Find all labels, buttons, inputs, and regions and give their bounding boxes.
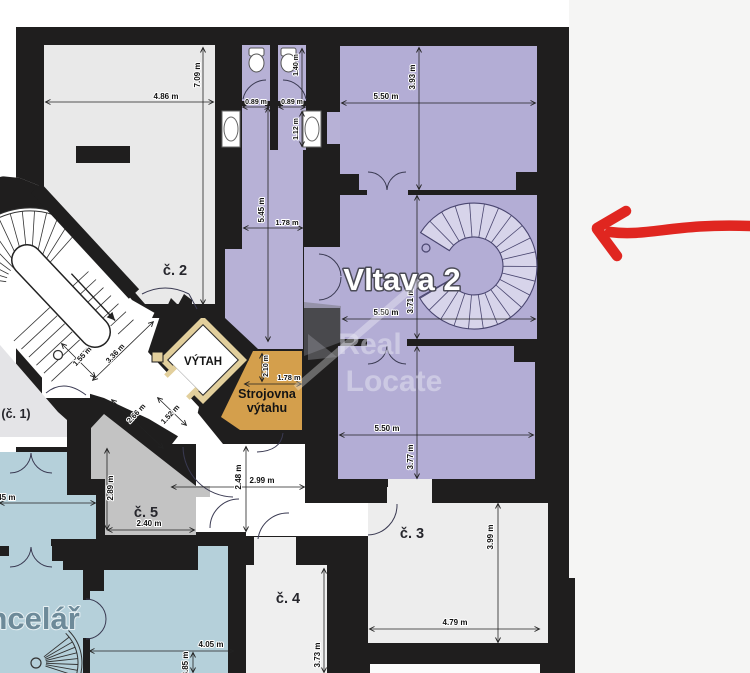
svg-text:3.99 m: 3.99 m	[486, 525, 495, 550]
svg-text:5.50 m: 5.50 m	[374, 92, 399, 101]
svg-text:1.78 m: 1.78 m	[277, 373, 301, 382]
svg-text:č. 2: č. 2	[163, 263, 187, 279]
svg-text:č. 3: č. 3	[400, 526, 424, 542]
svg-text:Vltava 2: Vltava 2	[343, 262, 460, 297]
svg-text:0.89 m: 0.89 m	[281, 99, 303, 106]
svg-text:2.10 m: 2.10 m	[263, 355, 270, 377]
svg-text:kancelář: kancelář	[0, 601, 80, 636]
svg-text:1.78 m: 1.78 m	[275, 218, 299, 227]
svg-text:1.40 m: 1.40 m	[293, 54, 300, 76]
svg-text:Locate: Locate	[346, 365, 443, 398]
svg-text:VÝTAH: VÝTAH	[184, 355, 222, 368]
svg-text:5.50 m: 5.50 m	[375, 424, 400, 433]
svg-text:3.77 m: 3.77 m	[406, 445, 415, 470]
svg-text:výtahu: výtahu	[247, 401, 287, 415]
svg-text:1.12 m: 1.12 m	[293, 118, 300, 140]
svg-text:0.89 m: 0.89 m	[245, 99, 267, 106]
svg-text:4.79 m: 4.79 m	[443, 618, 468, 627]
svg-text:č. 4: č. 4	[276, 591, 300, 607]
svg-text:Strojovna: Strojovna	[238, 387, 297, 401]
svg-text:2.48 m: 2.48 m	[234, 465, 243, 490]
svg-text:3.85 m: 3.85 m	[181, 652, 190, 673]
svg-text:4.86 m: 4.86 m	[154, 92, 179, 101]
svg-text:č. 5: č. 5	[134, 505, 158, 521]
svg-text:(č. 1): (č. 1)	[1, 407, 30, 421]
svg-text:2.45 m: 2.45 m	[0, 493, 15, 502]
svg-text:2.99 m: 2.99 m	[250, 476, 275, 485]
svg-text:3.73 m: 3.73 m	[313, 643, 322, 668]
svg-text:3.93 m: 3.93 m	[408, 65, 417, 90]
svg-text:4.05 m: 4.05 m	[199, 640, 224, 649]
svg-text:7.09 m: 7.09 m	[193, 63, 202, 88]
svg-text:5.45 m: 5.45 m	[257, 198, 266, 223]
svg-text:2.89 m: 2.89 m	[106, 476, 115, 501]
svg-text:Real: Real	[338, 328, 401, 361]
